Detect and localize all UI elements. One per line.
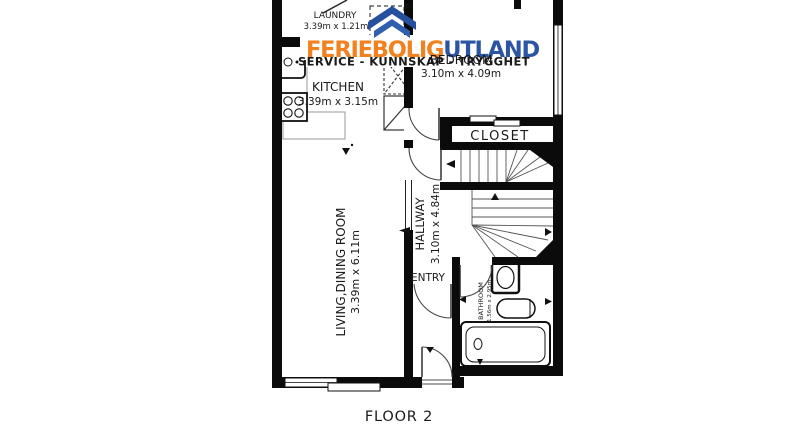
- floor-label: FLOOR 2: [365, 409, 433, 425]
- window-bedroom: [554, 25, 562, 115]
- floor-plan-page: FERIEBOLIGUTLAND SERVICE - KUNNSKAP - TR…: [0, 0, 796, 448]
- room-dims-kitchen: 3.39m x 3.15m: [298, 96, 378, 108]
- room-label-entry: ENTRY: [411, 272, 446, 284]
- room-label-living: LIVING,DINING ROOM: [334, 207, 348, 336]
- floor-plan-svg: FERIEBOLIGUTLAND SERVICE - KUNNSKAP - TR…: [0, 0, 796, 448]
- entry-inner-door: [414, 284, 451, 318]
- hallway-door: [409, 148, 441, 180]
- entry-front-door: [422, 347, 452, 377]
- partition-living-hallway: [404, 180, 413, 230]
- bedroom-door: [409, 108, 439, 140]
- room-label-laundry: LAUNDRY: [314, 11, 357, 21]
- opening-bedroom: [404, 108, 413, 140]
- opening-bathroom: [460, 257, 492, 265]
- room-dims-living: 3.39m x 6.11m: [349, 230, 362, 314]
- bathtub-icon: [461, 322, 550, 366]
- bathroom-sink-icon: [492, 262, 519, 293]
- brand-tagline: SERVICE - KUNNSKAP - TRYGGHET: [298, 55, 530, 69]
- stairs-lower-flight: [472, 190, 553, 257]
- entry-door-threshold: [422, 377, 452, 388]
- room-label-hallway: HALLWAY: [413, 197, 427, 251]
- toilet-icon: [497, 299, 535, 318]
- room-label-closet: CLOSET: [470, 129, 530, 144]
- opening-hallway: [404, 148, 413, 180]
- room-dims-bathroom: 1.56m x 2.95m: [487, 280, 493, 322]
- room-dims-bedroom: 3.10m x 4.09m: [421, 68, 501, 80]
- room-label-bedroom: BEDROOM: [430, 53, 493, 67]
- room-dims-hallway: 3.10m x 4.84m: [430, 184, 442, 264]
- room-label-bathroom: BATHROOM: [477, 282, 485, 320]
- room-dims-laundry: 3.39m x 1.21m: [304, 22, 369, 32]
- room-label-kitchen: KITCHEN: [312, 80, 364, 94]
- stairs-upper-flight: [461, 150, 548, 182]
